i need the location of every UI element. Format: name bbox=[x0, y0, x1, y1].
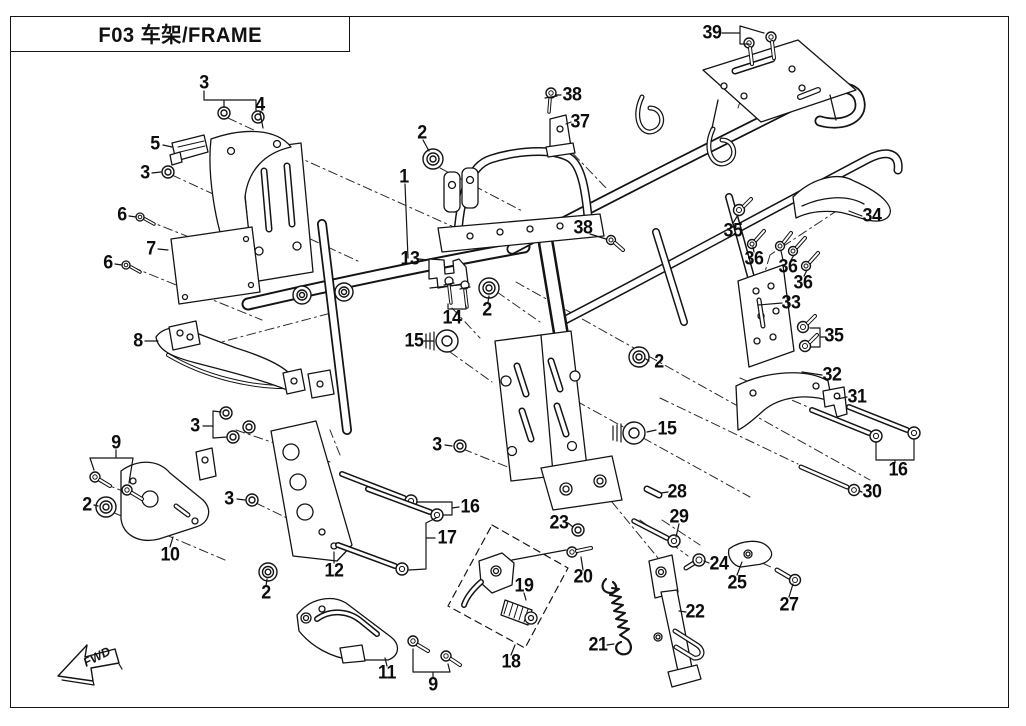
bolt-6-1 bbox=[136, 213, 154, 224]
bolt-38-top bbox=[545, 88, 557, 112]
nut-3-f bbox=[227, 431, 239, 443]
bolt-36-2 bbox=[776, 233, 792, 251]
nut-3-d bbox=[220, 407, 232, 419]
bolt-16-left-2 bbox=[368, 489, 443, 521]
nut-3-h bbox=[454, 440, 466, 452]
bolt-36-4 bbox=[802, 253, 819, 271]
nut-3-g bbox=[246, 494, 258, 506]
page-title: F03 车架/FRAME bbox=[98, 19, 262, 49]
damper-2-left bbox=[96, 497, 116, 517]
bolt-29 bbox=[634, 521, 680, 547]
bolt-35-top bbox=[734, 199, 752, 216]
bolt-9-1 bbox=[90, 472, 110, 486]
bolt-35-r2 bbox=[800, 335, 818, 352]
damper-on-tube-1 bbox=[293, 286, 311, 304]
damper-2-mid bbox=[479, 278, 499, 298]
nut-3-a bbox=[218, 107, 230, 119]
plug-15-right bbox=[613, 422, 645, 444]
bolt-14-2 bbox=[460, 281, 470, 307]
bolt-36-1 bbox=[748, 231, 765, 249]
side-stand-spring bbox=[603, 579, 631, 654]
title-box: F03 车架/FRAME bbox=[10, 16, 350, 52]
nut-3-c bbox=[162, 166, 174, 178]
bolt-17 bbox=[338, 545, 408, 575]
bolt-30 bbox=[801, 467, 860, 496]
nut-3-e bbox=[243, 421, 255, 433]
bolt-38-mid bbox=[607, 236, 624, 251]
pin-28 bbox=[647, 489, 659, 495]
bolt-24 bbox=[686, 554, 705, 568]
damper-on-tube-2 bbox=[335, 283, 353, 301]
damper-2-top bbox=[423, 149, 443, 169]
bolt-35-r1 bbox=[798, 316, 816, 333]
frame-parts bbox=[121, 40, 890, 687]
frame-illustration: FWD bbox=[0, 0, 1026, 726]
bolt-14-1 bbox=[444, 277, 454, 303]
bolt-27 bbox=[777, 570, 801, 586]
bolt-9-3 bbox=[408, 636, 428, 651]
damper-2-right bbox=[629, 347, 649, 367]
bolt-6-2 bbox=[122, 261, 140, 272]
nut-23 bbox=[572, 524, 584, 536]
parts-diagram-page: FWD F03 车架/FRAME 39383734536762113142153… bbox=[0, 0, 1026, 726]
bolt-9-4 bbox=[441, 651, 460, 665]
bolt-36-3 bbox=[789, 238, 806, 256]
bolt-16-right-2 bbox=[849, 407, 920, 439]
damper-2-bottom bbox=[259, 563, 277, 581]
fwd-arrow: FWD bbox=[58, 644, 122, 685]
bolt-20 bbox=[567, 547, 591, 557]
